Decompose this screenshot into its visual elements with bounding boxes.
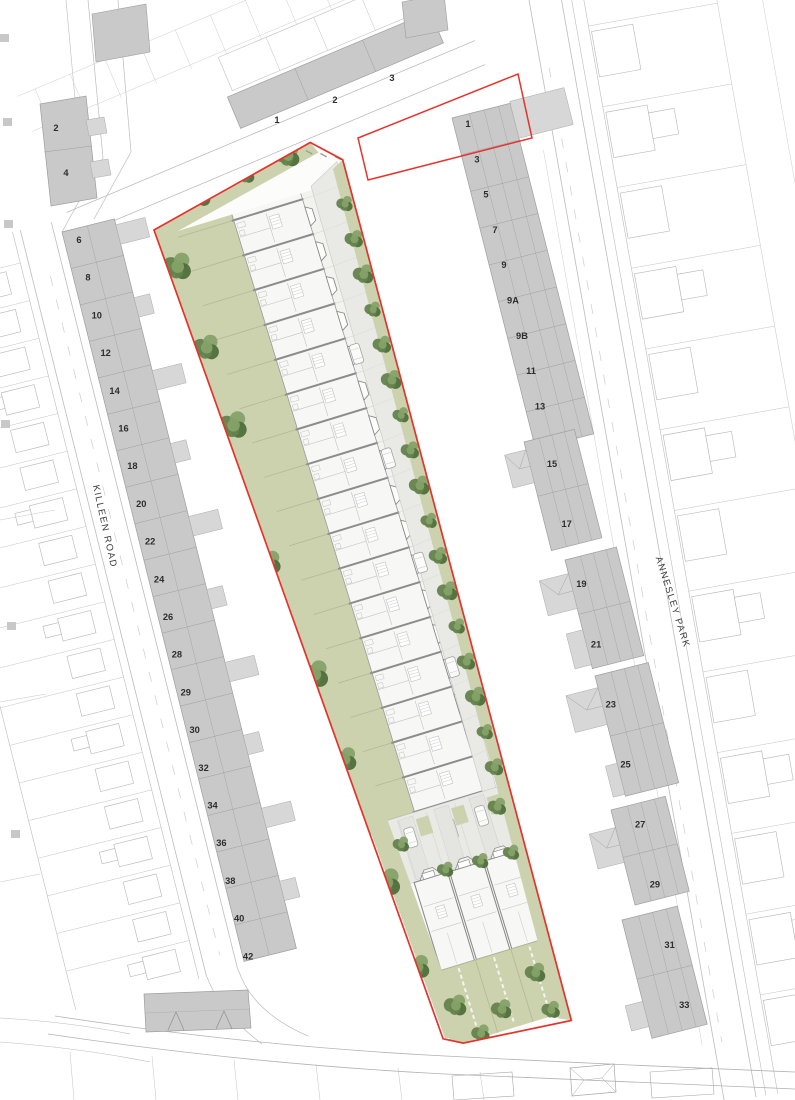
plot-number-killeen-40: 40 xyxy=(234,914,244,924)
plot-number-killeen-24: 24 xyxy=(154,574,165,584)
plot-number-annesley-27: 27 xyxy=(635,820,645,830)
plot-number-annesley-9A: 9A xyxy=(507,296,519,306)
plot-number-annesley-1: 1 xyxy=(465,119,470,129)
plot-number-killeen-28: 28 xyxy=(172,650,182,660)
plot-number-killeen-22: 22 xyxy=(145,537,155,547)
plot-number-annesley-11: 11 xyxy=(526,366,536,376)
plot-number-killeen-12: 12 xyxy=(101,348,111,358)
plot-number-killeen-42: 42 xyxy=(243,951,253,961)
plot-number-killeen-4: 4 xyxy=(63,168,69,178)
plot-number-annesley-17: 17 xyxy=(562,519,572,529)
plot-number-killeen-26: 26 xyxy=(163,612,173,622)
plot-number-annesley-33: 33 xyxy=(679,1000,689,1010)
plot-number-annesley-13: 13 xyxy=(535,401,545,411)
plot-number-annesley-7: 7 xyxy=(492,225,497,235)
plot-number-killeen-18: 18 xyxy=(127,461,137,471)
plot-number-killeen-30: 30 xyxy=(190,725,200,735)
plot-number-annesley-15: 15 xyxy=(547,459,557,469)
plot-number-killeen-6: 6 xyxy=(76,235,81,245)
plot-number-killeen-36: 36 xyxy=(216,838,226,848)
plot-number-annesley-9B: 9B xyxy=(516,331,528,341)
plot-number-topstreet-1: 1 xyxy=(274,115,279,125)
plot-number-killeen-32: 32 xyxy=(198,763,208,773)
plot-number-annesley-5: 5 xyxy=(483,190,488,200)
plot-number-killeen-29: 29 xyxy=(181,687,191,697)
plot-number-killeen-2: 2 xyxy=(53,123,58,133)
plot-number-killeen-38: 38 xyxy=(225,876,235,886)
plot-number-annesley-25: 25 xyxy=(620,760,630,770)
plot-number-annesley-21: 21 xyxy=(591,639,601,649)
plot-number-annesley-3: 3 xyxy=(474,154,479,164)
plot-number-killeen-20: 20 xyxy=(136,499,146,509)
plot-number-annesley-9: 9 xyxy=(501,260,506,270)
plot-number-topstreet-3: 3 xyxy=(389,73,394,83)
plot-number-topstreet-2: 2 xyxy=(332,95,337,105)
plot-number-annesley-29: 29 xyxy=(650,880,660,890)
plot-number-annesley-31: 31 xyxy=(664,940,674,950)
site-plan: 2468101214161820222426282930323436384042… xyxy=(0,0,795,1100)
plot-number-killeen-34: 34 xyxy=(207,801,218,811)
plot-number-annesley-19: 19 xyxy=(576,579,586,589)
plot-number-killeen-10: 10 xyxy=(92,310,102,320)
plot-number-killeen-16: 16 xyxy=(118,424,128,434)
plot-number-annesley-23: 23 xyxy=(606,699,616,709)
plot-number-killeen-8: 8 xyxy=(85,273,90,283)
site-plan-drawing: 2468101214161820222426282930323436384042… xyxy=(0,0,795,1100)
plot-number-killeen-14: 14 xyxy=(109,386,120,396)
